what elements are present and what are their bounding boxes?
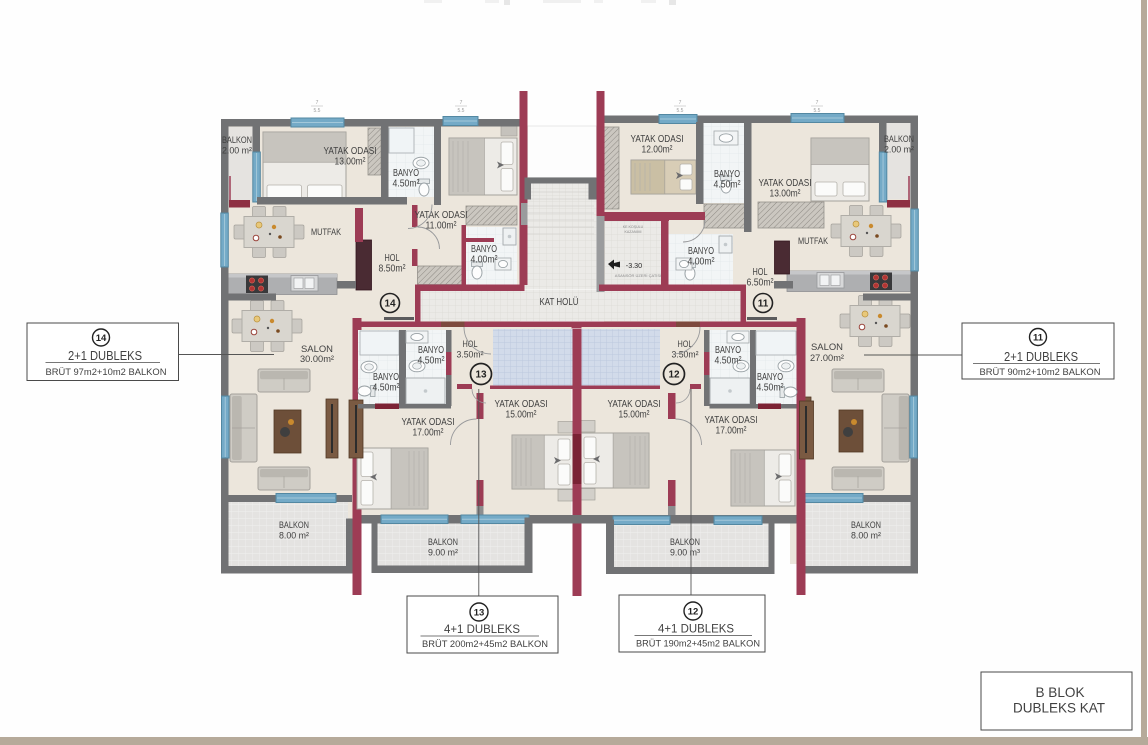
svg-text:KAZANIMI: KAZANIMI <box>625 230 642 234</box>
svg-text:HOL: HOL <box>753 267 768 278</box>
svg-text:-3.30: -3.30 <box>626 261 642 270</box>
svg-text:HOL: HOL <box>385 253 400 264</box>
svg-text:BANYO: BANYO <box>418 345 444 356</box>
svg-text:11.00m²: 11.00m² <box>426 221 458 232</box>
svg-text:BANYO: BANYO <box>471 244 497 255</box>
svg-text:4.50m²: 4.50m² <box>418 356 446 367</box>
svg-text:YATAK ODASI: YATAK ODASI <box>759 178 812 189</box>
svg-text:YATAK ODASI: YATAK ODASI <box>495 399 548 410</box>
svg-text:12: 12 <box>688 607 699 618</box>
svg-text:27.00m²: 27.00m² <box>810 353 844 363</box>
svg-text:BALKON: BALKON <box>884 134 914 144</box>
svg-text:8.00 m²: 8.00 m² <box>279 531 309 541</box>
svg-text:5.5: 5.5 <box>677 108 684 114</box>
svg-text:13: 13 <box>475 370 487 381</box>
svg-text:4.50m²: 4.50m² <box>393 179 421 190</box>
svg-text:9.00 m³: 9.00 m³ <box>670 548 700 558</box>
svg-text:12.00m²: 12.00m² <box>642 145 674 156</box>
svg-text:SALON: SALON <box>301 344 333 354</box>
svg-text:5.5: 5.5 <box>814 108 821 114</box>
svg-text:BRÜT 97m2+10m2 BALKON: BRÜT 97m2+10m2 BALKON <box>46 367 167 378</box>
svg-text:BANYO: BANYO <box>715 345 741 356</box>
svg-text:KE KOŞULU: KE KOŞULU <box>623 225 644 229</box>
svg-text:4.00m²: 4.00m² <box>471 255 499 266</box>
svg-text:BALKON: BALKON <box>670 537 700 547</box>
svg-text:2+1 DUBLEKS: 2+1 DUBLEKS <box>1004 349 1078 364</box>
svg-text:14: 14 <box>384 299 396 310</box>
svg-text:11: 11 <box>758 299 769 310</box>
svg-text:17.00m²: 17.00m² <box>413 428 445 439</box>
svg-text:4.50m²: 4.50m² <box>715 356 743 367</box>
svg-text:BANYO: BANYO <box>373 372 399 383</box>
svg-text:YATAK ODASI: YATAK ODASI <box>415 210 468 221</box>
svg-text:8.00 m²: 8.00 m² <box>851 531 881 541</box>
svg-text:4.50m²: 4.50m² <box>373 383 401 394</box>
svg-text:14: 14 <box>96 333 107 344</box>
svg-text:BALKON: BALKON <box>279 520 309 530</box>
svg-text:B BLOK: B BLOK <box>1036 684 1086 700</box>
svg-text:15.00m²: 15.00m² <box>619 410 651 421</box>
svg-text:SALON: SALON <box>811 342 843 352</box>
svg-text:HOL: HOL <box>678 339 693 350</box>
svg-text:4+1 DUBLEKS: 4+1 DUBLEKS <box>444 622 520 636</box>
svg-text:BRÜT 200m2+45m2 BALKON: BRÜT 200m2+45m2 BALKON <box>422 639 548 650</box>
svg-text:15.00m²: 15.00m² <box>506 410 538 421</box>
svg-text:BANYO: BANYO <box>757 372 783 383</box>
svg-text:YATAK ODASI: YATAK ODASI <box>631 134 684 145</box>
svg-text:YATAK ODASI: YATAK ODASI <box>402 417 455 428</box>
svg-text:6.50m²: 6.50m² <box>747 278 775 289</box>
svg-text:BALKON: BALKON <box>222 135 252 145</box>
svg-text:30.00m²: 30.00m² <box>300 354 334 364</box>
svg-text:YATAK ODASI: YATAK ODASI <box>705 415 758 426</box>
svg-text:DUBLEKS KAT: DUBLEKS KAT <box>1013 700 1105 716</box>
svg-text:13.00m²: 13.00m² <box>770 189 802 200</box>
svg-text:BALKON: BALKON <box>851 520 881 530</box>
svg-text:5.5: 5.5 <box>314 108 321 114</box>
svg-text:BANYO: BANYO <box>393 168 419 179</box>
svg-text:2.00 m²: 2.00 m² <box>222 146 252 156</box>
svg-text:5.5: 5.5 <box>458 108 465 114</box>
svg-text:4.50m²: 4.50m² <box>714 180 742 191</box>
svg-text:YATAK ODASI: YATAK ODASI <box>608 399 661 410</box>
svg-text:MUTFAK: MUTFAK <box>798 236 829 247</box>
svg-text:BALKON: BALKON <box>428 537 458 547</box>
svg-text:13.00m²: 13.00m² <box>335 157 367 168</box>
svg-text:2.00 m²: 2.00 m² <box>884 145 914 155</box>
svg-text:3.50m²: 3.50m² <box>457 350 485 361</box>
svg-text:7: 7 <box>460 100 463 106</box>
svg-text:9.00 m²: 9.00 m² <box>428 548 458 558</box>
svg-text:7: 7 <box>316 100 319 106</box>
svg-text:4+1 DUBLEKS: 4+1 DUBLEKS <box>658 622 734 636</box>
svg-text:BANYO: BANYO <box>714 169 740 180</box>
svg-text:8.50m²: 8.50m² <box>379 264 407 275</box>
svg-text:ASANSÖR ÜZERİ ÇATISI: ASANSÖR ÜZERİ ÇATISI <box>615 273 661 278</box>
svg-text:BRÜT 90m2+10m2 BALKON: BRÜT 90m2+10m2 BALKON <box>980 367 1101 378</box>
svg-text:2+1 DUBLEKS: 2+1 DUBLEKS <box>68 348 142 363</box>
svg-text:7: 7 <box>816 100 819 106</box>
svg-text:13: 13 <box>474 608 485 619</box>
svg-text:MUTFAK: MUTFAK <box>311 227 342 238</box>
svg-text:12: 12 <box>668 370 680 381</box>
svg-text:YATAK ODASI: YATAK ODASI <box>324 146 377 157</box>
svg-text:17.00m²: 17.00m² <box>716 426 748 437</box>
svg-text:4.50m²: 4.50m² <box>757 383 785 394</box>
svg-text:KAT HOLÜ: KAT HOLÜ <box>540 297 579 308</box>
svg-text:BANYO: BANYO <box>688 246 714 257</box>
svg-text:BRÜT 190m2+45m2 BALKON: BRÜT 190m2+45m2 BALKON <box>636 639 760 650</box>
svg-text:4.00m²: 4.00m² <box>688 257 716 268</box>
svg-text:7: 7 <box>679 100 682 106</box>
svg-text:11: 11 <box>1033 333 1044 344</box>
